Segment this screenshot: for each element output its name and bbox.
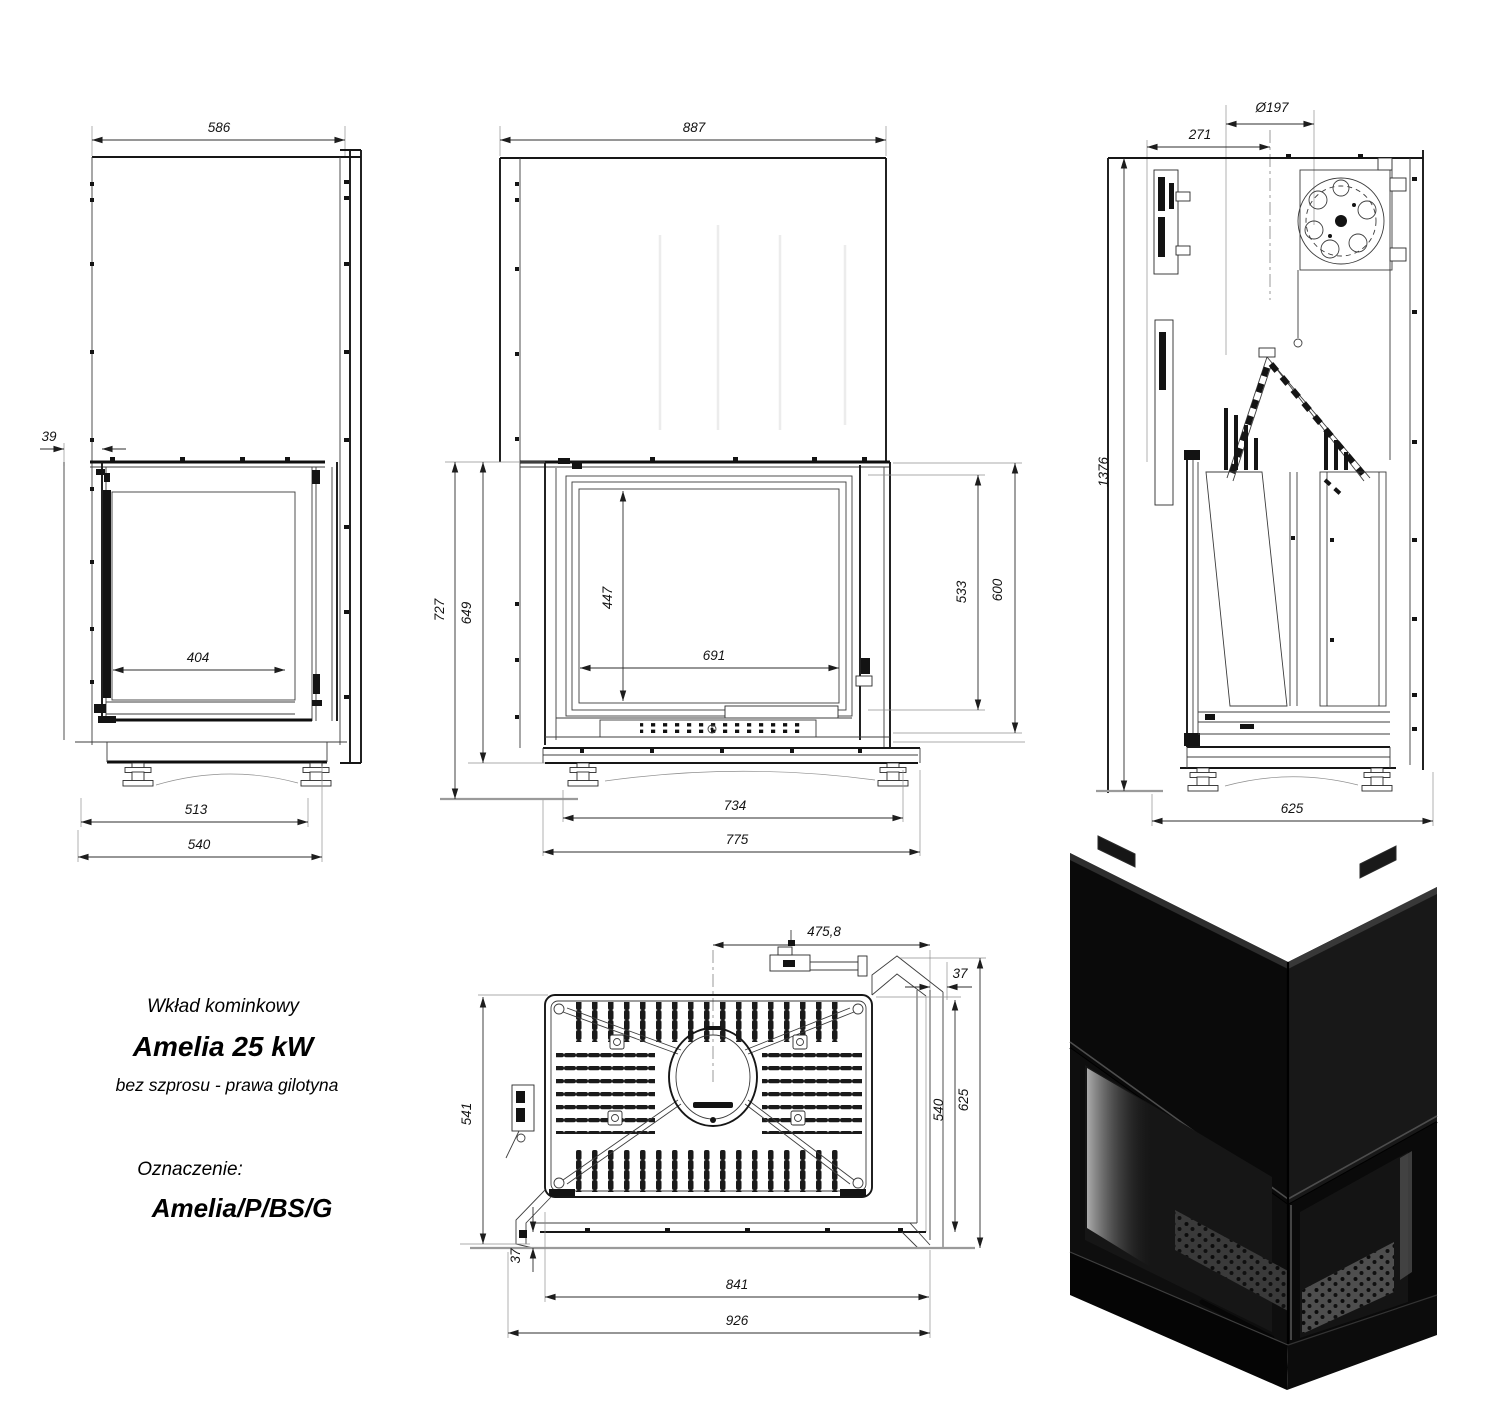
plan-dim-541-group: 541	[459, 995, 548, 1244]
side-feet	[123, 763, 331, 786]
section-deflector	[1226, 348, 1370, 481]
front-dim-691-group: 691	[580, 648, 839, 668]
iso-tab-left	[1098, 836, 1135, 867]
dim-plan-gap-front: 37	[508, 1248, 523, 1264]
dim-front-glass-w: 691	[703, 648, 726, 663]
section-firebox	[1184, 450, 1390, 747]
right-section-view: Ø197 271	[1096, 100, 1433, 826]
section-vermiculite-panel	[1206, 472, 1287, 706]
dim-front-base: 734	[724, 798, 747, 813]
drawing-sheet: 586 39 404	[0, 0, 1500, 1427]
technical-drawing: 586 39 404	[0, 0, 1500, 1427]
front-dim-775-group: 775	[543, 770, 920, 856]
dim-plan-width-total: 926	[726, 1313, 749, 1328]
dim-section-flue: Ø197	[1254, 100, 1289, 115]
iso-tab-right	[1360, 846, 1396, 878]
side-dim-586-group: 586	[92, 120, 345, 156]
dim-front-opening: 533	[954, 580, 969, 603]
dim-side-glass: 404	[187, 650, 210, 665]
dim-front-door: 600	[990, 578, 1005, 601]
side-dim-513-group: 513	[81, 798, 308, 827]
dim-front-body: 649	[459, 601, 474, 624]
section-back-screws	[1412, 177, 1417, 731]
product-category: Wkład kominkowy	[147, 996, 301, 1017]
left-side-view: 586 39 404	[40, 120, 361, 862]
designation-label: Oznaczenie:	[137, 1159, 243, 1180]
dim-plan-flue-x: 475,8	[807, 924, 841, 939]
dim-section-offset: 271	[1188, 127, 1212, 142]
dim-side-total: 540	[188, 837, 211, 852]
dim-section-depth: 625	[1281, 801, 1304, 816]
dim-plan-gap-side: 37	[952, 966, 968, 981]
front-dim-734-group: 734	[563, 770, 903, 822]
dim-front-height: 727	[432, 598, 447, 621]
dim-side-width: 586	[208, 120, 231, 135]
product-model: Amelia 25 kW	[132, 1031, 316, 1062]
front-dim-533-group: 533	[868, 475, 985, 710]
section-feet	[1188, 768, 1392, 791]
dim-side-base: 513	[185, 802, 208, 817]
dim-plan-depth-right: 540	[931, 1098, 946, 1121]
front-left-screws	[515, 182, 519, 719]
side-door-profile	[103, 490, 111, 698]
dim-plan-depth-left: 541	[459, 1103, 474, 1126]
front-hood-ghost-lines	[660, 225, 845, 430]
title-block: Wkład kominkowy Amelia 25 kW bez szprosu…	[116, 996, 339, 1223]
iso-render	[1070, 836, 1437, 1390]
section-dim-625-group: 625	[1152, 772, 1433, 826]
plan-view: 475,8	[459, 924, 986, 1338]
plan-fins-left	[556, 1046, 655, 1134]
dim-plan-width-inner: 841	[726, 1277, 749, 1292]
plan-dim-37-side-group: 37	[905, 962, 972, 1000]
section-damper-wheel	[1294, 170, 1406, 347]
dim-front-glass-h: 447	[600, 586, 615, 609]
dim-front-total: 775	[726, 832, 749, 847]
front-dim-447-group: 447	[600, 491, 623, 701]
plan-front-frame	[470, 1190, 975, 1248]
front-dim-727-group: 727	[432, 462, 545, 799]
plan-latch-left	[506, 1085, 534, 1158]
dim-front-width: 887	[683, 120, 706, 135]
front-feet	[568, 763, 908, 786]
plan-ribs-bottom	[566, 1150, 848, 1192]
front-dim-887-group: 887	[500, 120, 886, 156]
side-dim-404-group: 404	[113, 650, 285, 670]
front-air-control	[600, 720, 816, 737]
side-panel-screws	[90, 180, 349, 699]
dim-plan-depth-total: 625	[956, 1088, 971, 1111]
dim-side-offset: 39	[41, 429, 57, 444]
plan-fins-right	[762, 1046, 862, 1134]
front-glass	[579, 489, 839, 703]
dim-section-height: 1376	[1096, 456, 1111, 487]
section-dim-1376-group: 1376	[1096, 158, 1163, 791]
product-variant: bez szprosu - prawa gilotyna	[116, 1075, 339, 1095]
plan-dim-926-group: 926	[508, 1252, 930, 1338]
product-designation: Amelia/P/BS/G	[151, 1193, 333, 1223]
side-glass	[112, 492, 295, 700]
front-dim-649-group: 649	[459, 462, 545, 763]
front-air-holes	[640, 722, 800, 735]
front-handle-bar	[725, 706, 838, 718]
plan-dim-37-front-group: 37	[508, 1207, 533, 1272]
plan-dim-540-group: 540	[876, 997, 961, 1232]
front-view: 887 447 691	[432, 120, 1025, 856]
